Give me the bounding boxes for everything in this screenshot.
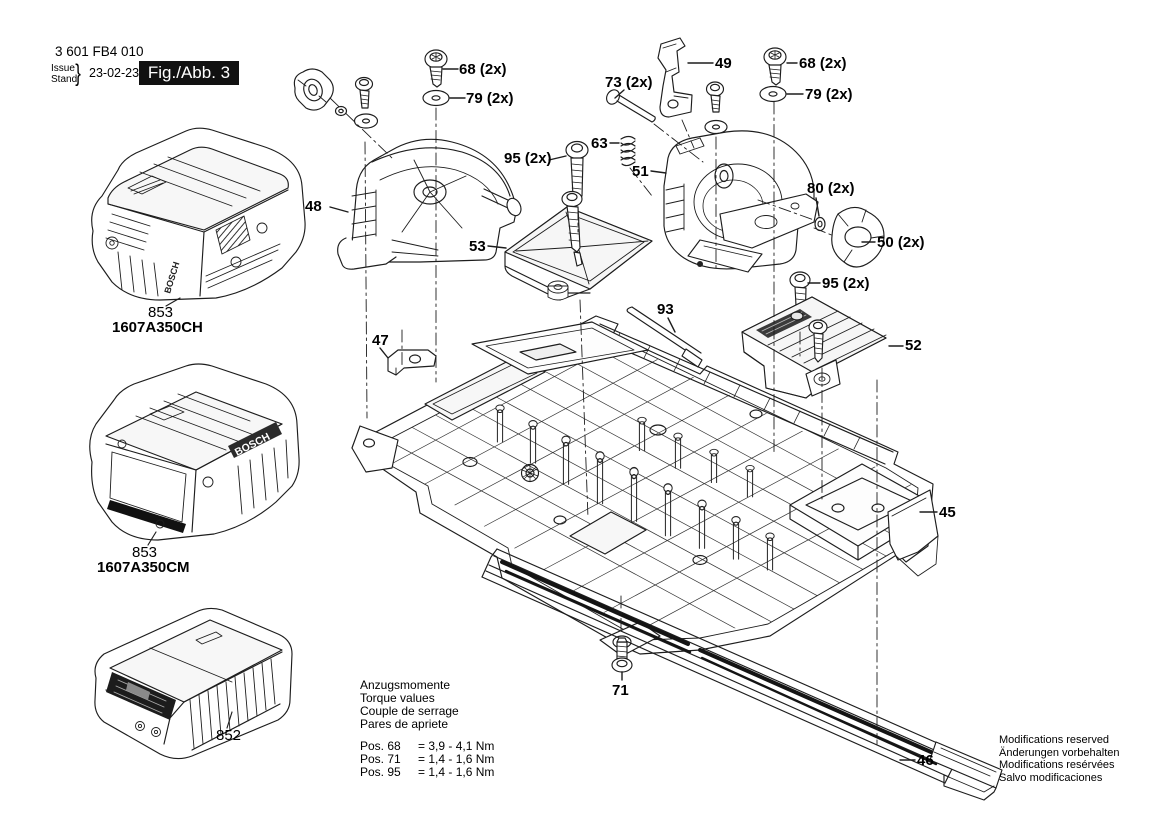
fastener-screw-upper-48 <box>356 78 373 109</box>
torque-pos: Pos. 95 <box>360 766 418 779</box>
parts-diagram-page: BOSCH BOSCH <box>0 0 1169 826</box>
callout-79-left: 79 (2x) <box>466 90 514 107</box>
callout-63: 63 <box>591 135 608 152</box>
charger-852-drawing <box>95 608 292 758</box>
stand-label: Stand <box>51 74 77 85</box>
fastener-68-right <box>764 48 786 85</box>
callout-68-right: 68 (2x) <box>799 55 847 72</box>
part-47-bracket <box>388 350 436 375</box>
figure-label: Fig./Abb. 3 <box>148 63 230 83</box>
note-en: Modifications reserved <box>999 734 1119 747</box>
torque-value: = 1,4 - 1,6 Nm <box>418 766 494 779</box>
part-51-housing <box>664 131 818 272</box>
exploded-view-drawing: BOSCH BOSCH <box>0 0 1169 826</box>
callout-49: 49 <box>715 55 732 72</box>
callout-68-left: 68 (2x) <box>459 61 507 78</box>
battery-1607A350CH-drawing: BOSCH <box>92 128 305 306</box>
part-52-adapter <box>742 297 886 398</box>
modifications-note: Modifications reserved Änderungen vorbeh… <box>999 734 1119 784</box>
fastener-79-right <box>760 87 786 102</box>
callout-79-right: 79 (2x) <box>805 86 853 103</box>
part-63-spring <box>621 137 635 166</box>
callout-46: 46 <box>917 752 934 769</box>
callout-51: 51 <box>632 163 649 180</box>
brace-glyph: } <box>75 60 81 88</box>
torque-table: Anzugsmomente Torque values Couple de se… <box>360 679 494 779</box>
issue-stand-label: Issue Stand <box>51 63 77 85</box>
callout-73: 73 (2x) <box>605 74 653 91</box>
document-part-number: 3 601 FB4 010 <box>55 44 144 59</box>
callout-52: 52 <box>905 337 922 354</box>
fastener-screw-mid-51 <box>705 82 727 134</box>
callout-45: 45 <box>939 504 956 521</box>
part-50-knob-upper <box>294 69 333 110</box>
battery-1607A350CM-drawing: BOSCH <box>90 364 299 545</box>
note-es: Salvo modificaciones <box>999 772 1119 785</box>
figure-label-box: Fig./Abb. 3 <box>139 61 239 85</box>
battery2-model: 1607A350CM <box>97 559 190 576</box>
callout-47: 47 <box>372 332 389 349</box>
callout-95-left: 95 (2x) <box>504 150 552 167</box>
issue-label: Issue <box>51 63 77 74</box>
callout-93: 93 <box>657 301 674 318</box>
callout-48: 48 <box>305 198 322 215</box>
issue-date: 23-02-23 <box>89 66 139 80</box>
torque-title-es: Pares de apriete <box>360 718 494 731</box>
part-49-latch <box>658 38 692 117</box>
fastener-washer-small-upper <box>336 107 347 116</box>
fastener-79-left <box>423 91 449 106</box>
fastener-washer-79-upper <box>355 114 378 128</box>
callout-80: 80 (2x) <box>807 180 855 197</box>
callout-71: 71 <box>612 682 629 699</box>
callout-53: 53 <box>469 238 486 255</box>
callout-50: 50 (2x) <box>877 234 925 251</box>
note-de: Änderungen vorbehalten <box>999 747 1119 760</box>
charger-ref: 852 <box>216 727 241 744</box>
callout-95-right: 95 (2x) <box>822 275 870 292</box>
part-73-pin <box>604 88 655 122</box>
note-fr: Modifications resérvées <box>999 759 1119 772</box>
torque-row-95: Pos. 95 = 1,4 - 1,6 Nm <box>360 766 494 779</box>
battery1-model: 1607A350CH <box>112 319 203 336</box>
